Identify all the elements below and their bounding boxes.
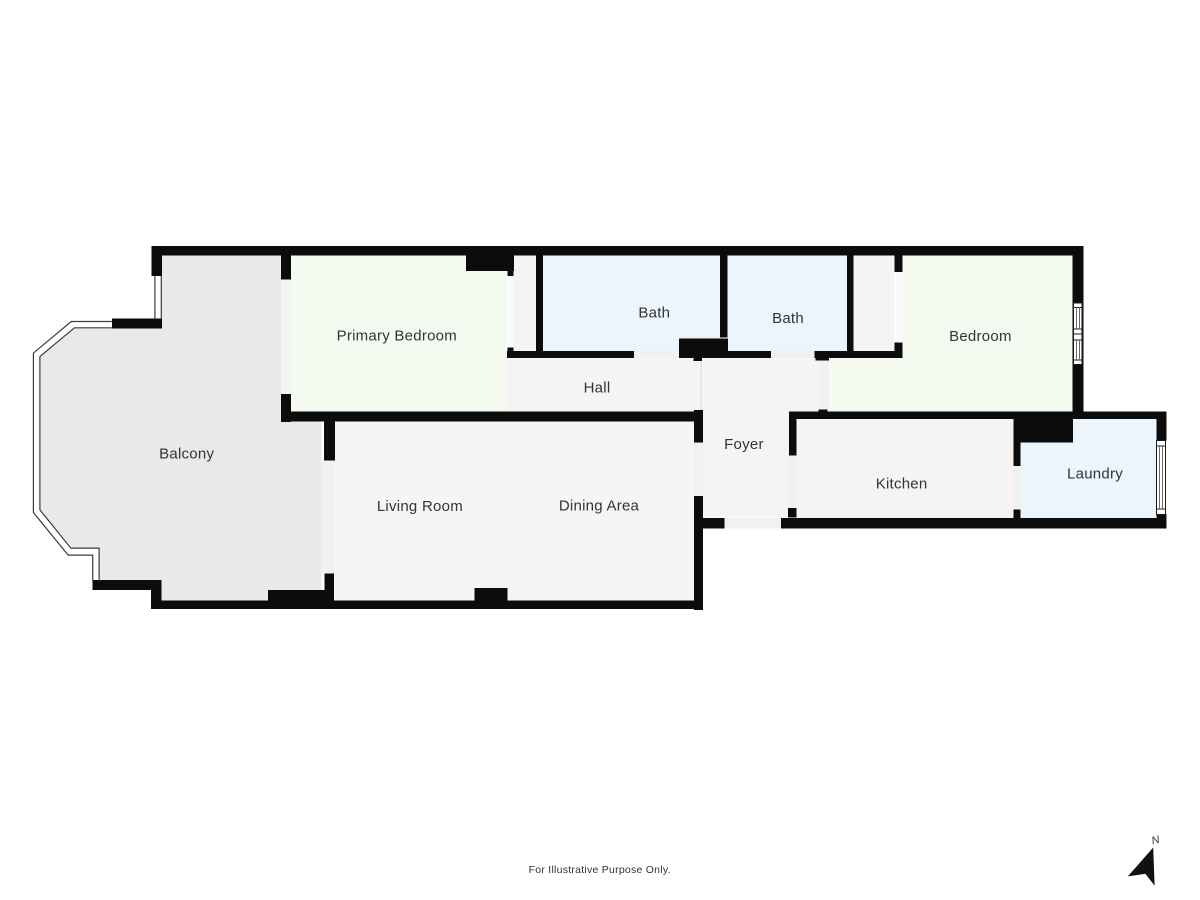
svg-text:For Illustrative Purpose Only.: For Illustrative Purpose Only.: [529, 864, 671, 876]
svg-text:Balcony: Balcony: [159, 445, 214, 462]
svg-text:Dining Area: Dining Area: [559, 498, 640, 515]
svg-text:Bath: Bath: [638, 305, 670, 322]
svg-text:Kitchen: Kitchen: [876, 475, 928, 492]
svg-text:Bath: Bath: [772, 310, 804, 327]
svg-text:Bedroom: Bedroom: [949, 328, 1012, 345]
svg-text:Living Room: Living Room: [377, 498, 463, 515]
svg-text:Primary Bedroom: Primary Bedroom: [337, 328, 457, 345]
svg-text:Foyer: Foyer: [724, 436, 764, 453]
svg-text:Laundry: Laundry: [1067, 466, 1123, 483]
svg-text:Hall: Hall: [584, 380, 611, 397]
